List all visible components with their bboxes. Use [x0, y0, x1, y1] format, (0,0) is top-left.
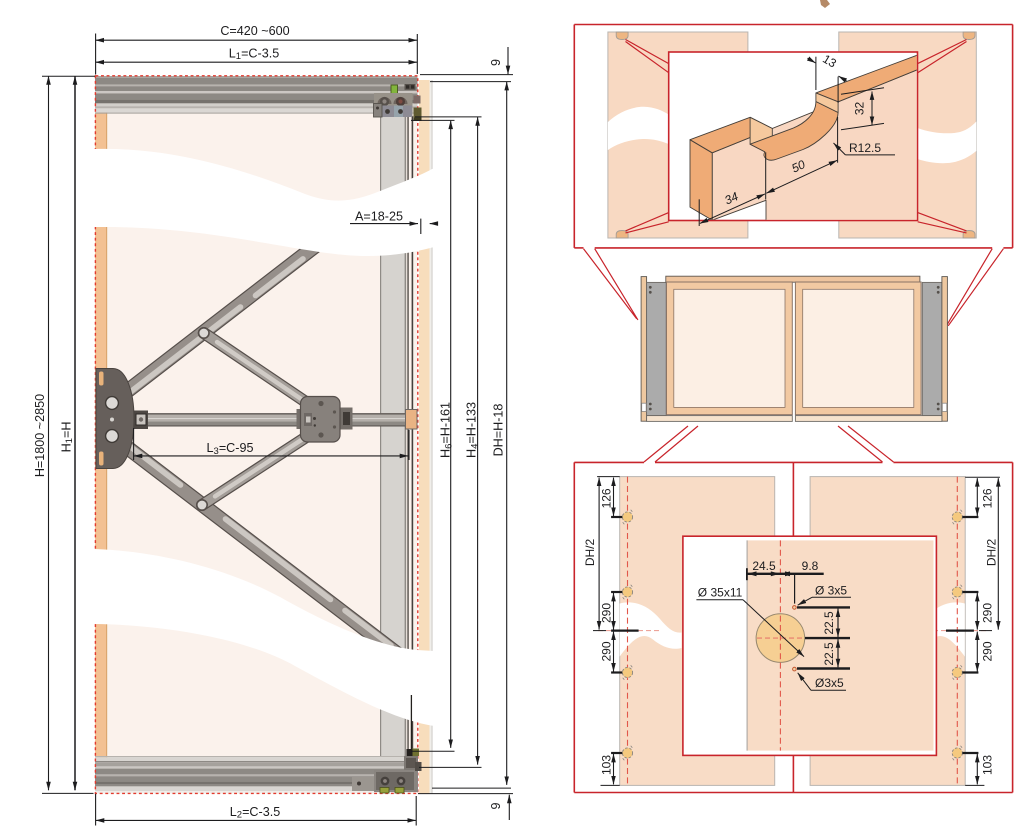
svg-text:103: 103 [980, 755, 994, 775]
svg-text:C=420 ~600: C=420 ~600 [220, 24, 289, 38]
svg-text:Ø 3x5: Ø 3x5 [815, 583, 847, 597]
svg-text:H1=H: H1=H [59, 422, 75, 453]
svg-text:L2=C-3.5: L2=C-3.5 [230, 805, 280, 821]
svg-text:L1=C-3.5: L1=C-3.5 [229, 46, 279, 62]
svg-text:22.5: 22.5 [822, 611, 836, 635]
svg-text:DH=H-18: DH=H-18 [492, 404, 506, 457]
svg-text:290: 290 [599, 603, 613, 623]
svg-text:H=1800 ~2850: H=1800 ~2850 [33, 394, 47, 477]
svg-text:290: 290 [599, 641, 613, 661]
svg-text:32: 32 [853, 102, 867, 116]
svg-text:DH/2: DH/2 [985, 539, 999, 567]
svg-text:9: 9 [489, 59, 503, 66]
svg-text:Ø3x5: Ø3x5 [815, 676, 844, 690]
svg-text:126: 126 [599, 488, 613, 508]
svg-text:DH/2: DH/2 [583, 539, 597, 567]
svg-text:22.5: 22.5 [822, 642, 836, 666]
svg-text:9.8: 9.8 [802, 559, 819, 573]
svg-text:R12.5: R12.5 [849, 141, 881, 155]
svg-text:290: 290 [980, 641, 994, 661]
svg-text:H6=H-161: H6=H-161 [439, 402, 455, 458]
svg-text:9: 9 [489, 802, 503, 809]
svg-text:H4=H-133: H4=H-133 [465, 402, 481, 458]
svg-text:A=18-25: A=18-25 [355, 209, 403, 223]
svg-text:290: 290 [980, 603, 994, 623]
svg-text:103: 103 [599, 755, 613, 775]
svg-text:Ø 35x11: Ø 35x11 [698, 586, 743, 600]
svg-text:24.5: 24.5 [752, 559, 776, 573]
svg-text:126: 126 [980, 488, 994, 508]
